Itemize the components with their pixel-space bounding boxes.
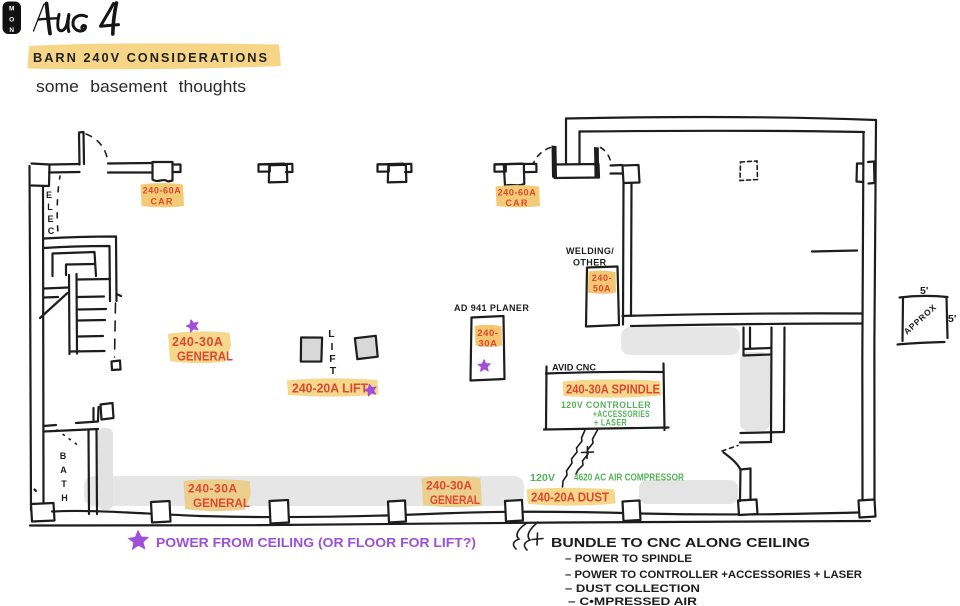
svg-text:I: I [331, 341, 334, 353]
svg-text:240-60A: 240-60A [498, 188, 537, 198]
svg-text:BUNDLE TO CNC ALONG CEILING: BUNDLE TO CNC ALONG CEILING [551, 536, 810, 550]
svg-text:GENERAL: GENERAL [430, 493, 480, 507]
svg-text:T: T [330, 365, 337, 377]
svg-text:CAR: CAR [505, 198, 528, 208]
svg-text:– C•MPRESSED AIR: – C•MPRESSED AIR [568, 596, 697, 606]
svg-text:+ LASER: + LASER [594, 418, 627, 429]
svg-text:AD 941 PLANER: AD 941 PLANER [454, 303, 529, 313]
svg-text:WELDING/: WELDING/ [566, 246, 614, 256]
svg-text:some basement thoughts: some basement thoughts [36, 78, 246, 96]
svg-text:240-30A: 240-30A [188, 482, 238, 496]
svg-text:240-30A: 240-30A [172, 335, 223, 349]
svg-text:120V: 120V [530, 473, 555, 484]
svg-text:M: M [9, 6, 14, 13]
svg-text:240-: 240- [477, 328, 498, 339]
svg-text:GENERAL: GENERAL [177, 350, 233, 364]
svg-text:O: O [9, 17, 14, 24]
svg-text:CAR: CAR [150, 197, 173, 207]
svg-text:A: A [60, 465, 67, 475]
svg-text:50A: 50A [593, 284, 611, 294]
svg-text:C: C [48, 226, 55, 236]
svg-text:POWER FROM CEILING (OR FLOOR: POWER FROM CEILING (OR FLOOR FOR LIFT?) [156, 535, 476, 550]
svg-text:F: F [329, 353, 336, 365]
svg-text:H: H [61, 493, 68, 503]
svg-text:240-20A DUST: 240-20A DUST [531, 491, 609, 505]
svg-text:4620 AC AIR COMPRESSOR: 4620 AC AIR COMPRESSOR [574, 473, 685, 484]
svg-text:240-30A: 240-30A [426, 479, 472, 493]
svg-text:5': 5' [948, 313, 956, 325]
svg-text:– POWER TO SPINDLE: – POWER TO SPINDLE [565, 553, 692, 565]
svg-text:240-60A: 240-60A [143, 186, 182, 196]
svg-text:5': 5' [920, 285, 928, 297]
svg-text:240-20A LIFT: 240-20A LIFT [292, 382, 368, 396]
svg-text:E: E [46, 190, 52, 200]
svg-text:GENERAL: GENERAL [193, 496, 250, 510]
svg-text:L: L [328, 328, 335, 340]
svg-text:240-30A SPINDLE: 240-30A SPINDLE [566, 383, 660, 397]
svg-text:BARN 240V CONSIDERATIONS: BARN 240V CONSIDERATIONS [33, 50, 269, 65]
svg-text:B: B [60, 451, 67, 461]
svg-text:240-: 240- [592, 273, 612, 283]
svg-text:E: E [47, 214, 53, 224]
svg-text:– DUST COLLECTION: – DUST COLLECTION [565, 583, 700, 595]
svg-text:T: T [61, 479, 67, 489]
svg-text:N: N [9, 27, 14, 34]
svg-text:L: L [47, 202, 53, 212]
svg-text:30A: 30A [478, 339, 497, 350]
svg-text:– POWER TO CONTROLLER +ACCESS: – POWER TO CONTROLLER +ACCESSORIES + LAS… [565, 569, 862, 581]
